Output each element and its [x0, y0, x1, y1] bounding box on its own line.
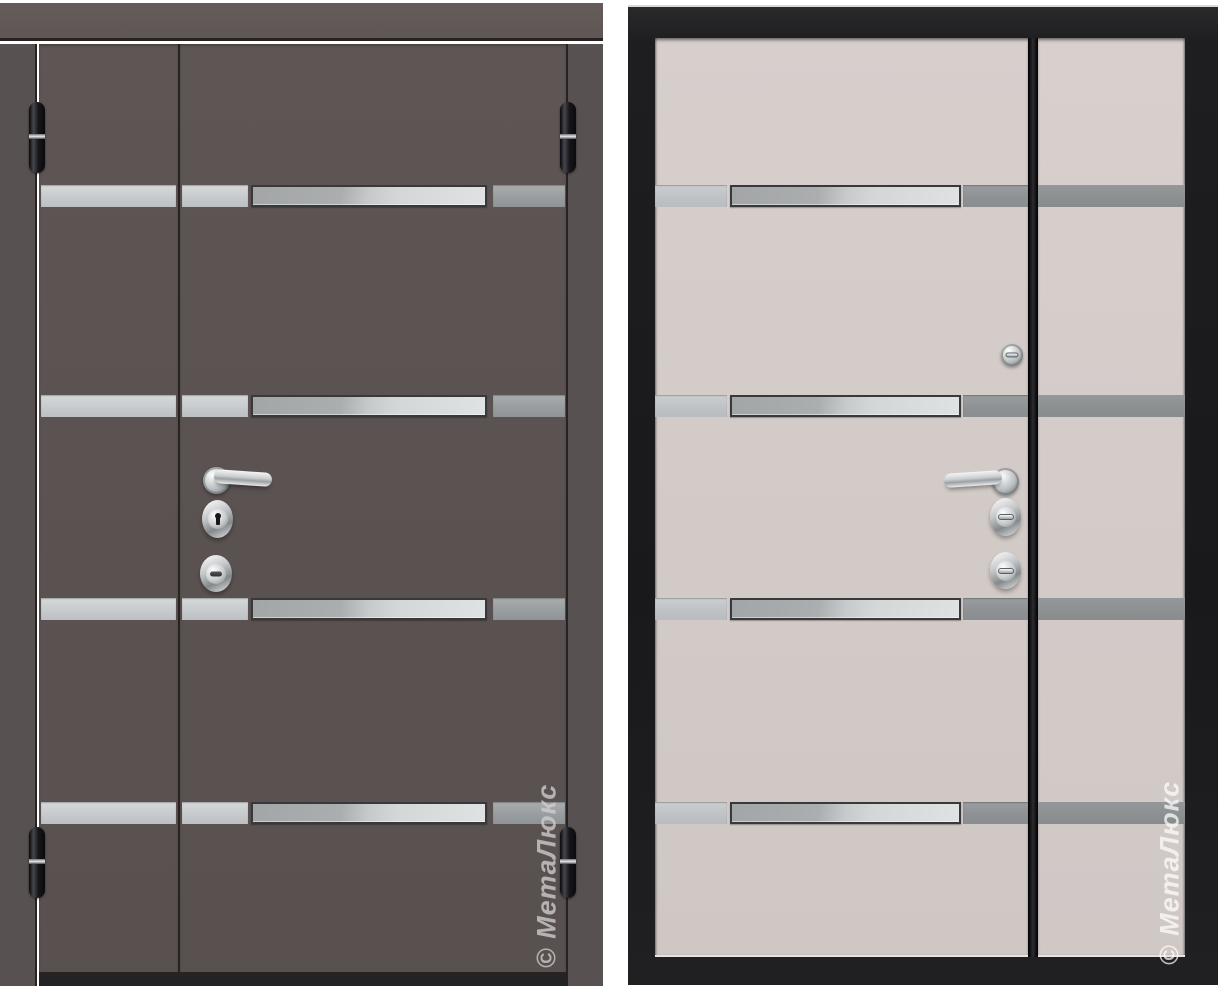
armored-cylinder-escutcheon: [200, 555, 232, 592]
thumbturn-knob: [1006, 353, 1019, 358]
hinge-bottom-left: [29, 827, 45, 898]
decor-strip: [963, 802, 1028, 824]
hinge-top-left: [29, 102, 45, 173]
door-frame-header: [0, 3, 603, 41]
decor-strip: [493, 598, 565, 620]
decor-strip: [182, 395, 248, 417]
hinge-top-right: [560, 102, 576, 173]
watermark-text: © МетаЛюкс: [532, 784, 563, 969]
product-photo-canvas: © МетаЛюкс: [0, 0, 1232, 994]
thumbturn-escutcheon: [990, 498, 1021, 536]
decor-strip: [182, 598, 248, 620]
cylinder-slot-icon: [210, 571, 222, 576]
cylinder-face: [996, 561, 1016, 581]
decor-strip-steel-inset: [730, 185, 961, 207]
deadbolt-thumbturn: [1001, 344, 1023, 366]
door-exterior-view: © МетаЛюкс: [0, 3, 603, 986]
thumbturn-knob: [998, 514, 1014, 520]
decor-strip-steel-inset: [251, 598, 487, 620]
decor-strip: [963, 598, 1028, 620]
decor-strip: [41, 395, 176, 417]
decor-strip-side-panel: [1038, 395, 1185, 417]
door-leaf-narrow: [39, 44, 180, 975]
decor-strip: [655, 395, 727, 417]
decor-strip-steel-inset: [251, 802, 487, 824]
decor-strip-steel-inset: [251, 185, 487, 207]
decor-strip: [655, 598, 727, 620]
decor-strip: [41, 598, 176, 620]
decor-strip: [493, 395, 565, 417]
cylinder-face: [206, 564, 226, 584]
decor-strip: [41, 802, 176, 824]
decor-strip-steel-inset: [730, 598, 961, 620]
decor-strip-side-panel: [1038, 185, 1185, 207]
cylinder-face: [208, 509, 228, 529]
thumbturn-escutcheon: [990, 552, 1021, 589]
decor-strip: [182, 802, 248, 824]
decor-strip: [963, 185, 1028, 207]
door-leaf-main: [180, 44, 566, 975]
decor-strip: [493, 185, 565, 207]
decor-strip-side-panel: [1038, 598, 1185, 620]
decor-strip-steel-inset: [730, 395, 961, 417]
decor-strip: [655, 185, 727, 207]
decor-strip: [41, 185, 176, 207]
decor-strip-steel-inset: [251, 395, 487, 417]
thumbturn-knob: [998, 568, 1014, 574]
decor-strip: [963, 395, 1028, 417]
leaf-panel-separator: [1028, 38, 1038, 957]
decor-strip: [655, 802, 727, 824]
decor-strip: [182, 185, 248, 207]
decor-strip-steel-inset: [730, 802, 961, 824]
key-cylinder-escutcheon: [202, 500, 233, 538]
cylinder-face: [996, 507, 1016, 527]
door-interior-view: © МетаЛюкс: [628, 5, 1218, 985]
door-threshold: [39, 976, 566, 986]
keyhole-icon: [216, 517, 220, 525]
watermark-text: © МетаЛюкс: [1155, 781, 1186, 966]
